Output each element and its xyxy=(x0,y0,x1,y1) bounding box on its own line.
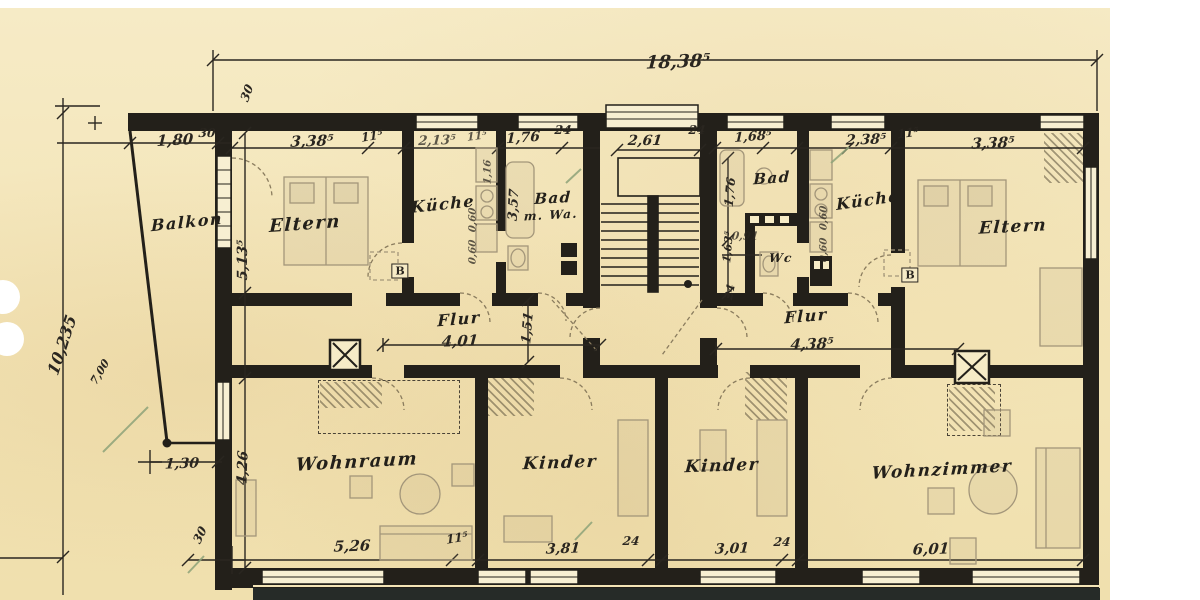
dimension-label: 5,26 xyxy=(333,536,371,555)
dimension-label: 3,57 xyxy=(506,188,523,222)
dimension-label: 0,60 xyxy=(819,237,830,263)
dimension-label: 5,13⁵ xyxy=(235,239,251,281)
dimension-label: 7,00 xyxy=(88,357,112,388)
dimension-label: 24 xyxy=(773,535,791,549)
dimension-label: 1,16 xyxy=(483,159,494,185)
dimension-label: 11⁵ xyxy=(361,127,384,145)
dimension-label: 11⁵ xyxy=(467,128,487,144)
dimension-label: 2,61 xyxy=(627,133,663,149)
dimension-label: 11⁵ xyxy=(897,124,919,141)
room-label-wohnzimmer: Wohnzimmer xyxy=(871,456,1012,483)
room-label-balkon: Balkon xyxy=(151,209,223,236)
room-label-bad: Bad xyxy=(534,188,572,208)
dimension-label: 1,68⁵ xyxy=(734,128,772,146)
dimension-label: 1,30 xyxy=(164,455,199,472)
dimension-label: B xyxy=(391,264,408,279)
dimension-label: 24 xyxy=(622,534,640,548)
dimension-label: 30 xyxy=(238,82,256,104)
dimension-label: 4,38⁵ xyxy=(790,334,834,354)
room-label-kinder: Kinder xyxy=(522,452,598,475)
dimension-label: 1,51 xyxy=(519,311,537,345)
dimension-label: 3,38⁵ xyxy=(971,133,1015,153)
dimension-label: 30 xyxy=(198,126,216,140)
dimension-label: 6,01 xyxy=(912,539,950,558)
dimension-label: 1,76 xyxy=(506,129,541,147)
dimension-label: 0,60 xyxy=(819,205,830,231)
dimension-label: 24 xyxy=(722,283,737,302)
dimension-label: 1,80 xyxy=(156,130,193,150)
dimension-label: 3,01 xyxy=(714,540,749,557)
dimension-label: 3,81 xyxy=(545,540,580,557)
dimension-label: 11⁵ xyxy=(446,529,469,547)
text-labels: BalkonElternKücheBadm. Wa.FlurBadWcKüche… xyxy=(0,0,1200,600)
dimension-label: 0,91 xyxy=(731,230,759,243)
room-label-wc: Wc xyxy=(768,251,793,265)
dimension-label: 4,26 xyxy=(234,450,251,486)
room-label-k-che: Küche xyxy=(411,191,475,217)
dimension-label: 24 xyxy=(688,123,706,137)
dimension-label: 3,38⁵ xyxy=(290,131,334,151)
room-label-k-che: Küche xyxy=(836,186,900,214)
dimension-label: 1,76 xyxy=(722,176,738,208)
dimension-label: 0,60 xyxy=(468,239,479,265)
dimension-label: 24 xyxy=(554,123,572,137)
room-label-bad: Bad xyxy=(753,168,791,189)
dimension-label: 10,235 xyxy=(44,312,80,378)
room-label-eltern: Eltern xyxy=(978,215,1047,239)
room-label-wohnraum: Wohnraum xyxy=(295,448,418,475)
room-label-m-wa-: m. Wa. xyxy=(523,207,578,224)
dimension-label: 30 xyxy=(190,524,209,546)
dimension-label: 4,01 xyxy=(441,331,479,350)
dimension-label: 18,38⁵ xyxy=(645,50,711,73)
room-label-flur: Flur xyxy=(784,305,828,328)
scanned-floorplan: BalkonElternKücheBadm. Wa.FlurBadWcKüche… xyxy=(0,0,1200,600)
room-label-flur: Flur xyxy=(437,308,481,331)
room-label-kinder: Kinder xyxy=(684,455,760,478)
dimension-label: 0,60 xyxy=(468,207,479,233)
dimension-label: B xyxy=(901,268,918,283)
room-label-eltern: Eltern xyxy=(269,211,341,237)
dimension-label: 2,38⁵ xyxy=(845,131,886,148)
dimension-label: 2,13⁵ xyxy=(418,133,456,149)
